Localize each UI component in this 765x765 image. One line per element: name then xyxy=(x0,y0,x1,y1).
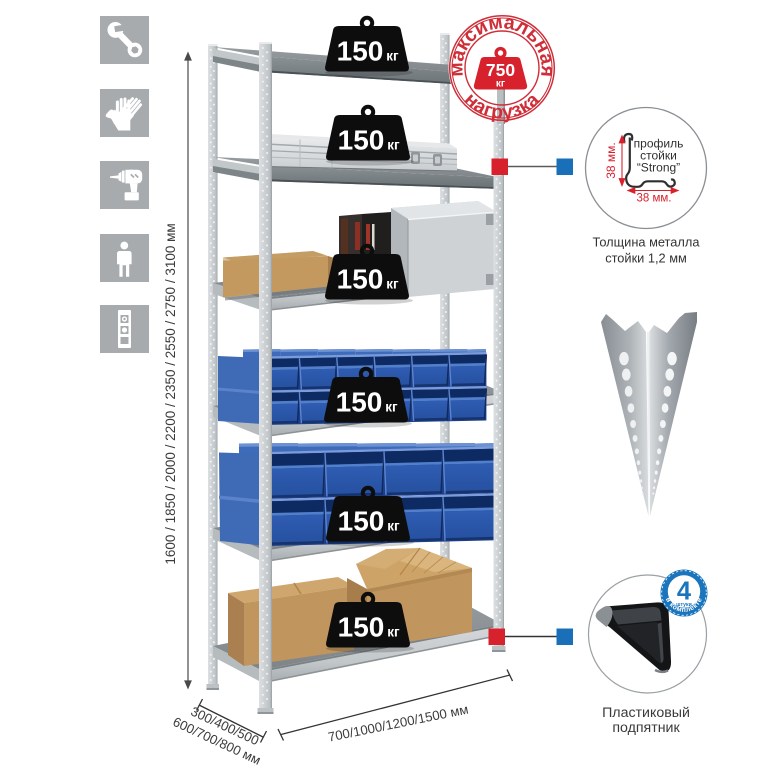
svg-text:Пластиковый: Пластиковый xyxy=(602,705,690,721)
svg-text:150: 150 xyxy=(338,506,385,537)
svg-text:кг: кг xyxy=(387,519,400,534)
svg-text:38 мм.: 38 мм. xyxy=(637,193,672,205)
svg-text:кг: кг xyxy=(387,625,400,640)
svg-text:Толщина металла: Толщина металла xyxy=(593,235,701,250)
svg-text:кг: кг xyxy=(386,277,399,292)
svg-text:150: 150 xyxy=(338,612,385,643)
svg-text:1600 / 1850 / 2000 / 2200 / 23: 1600 / 1850 / 2000 / 2200 / 2350 / 2550 … xyxy=(163,223,178,564)
svg-text:150: 150 xyxy=(338,125,385,156)
svg-text:кг: кг xyxy=(496,79,505,90)
svg-text:кг: кг xyxy=(386,49,399,64)
svg-text:38 мм.: 38 мм. xyxy=(604,142,618,179)
svg-text:кг: кг xyxy=(385,400,398,415)
svg-text:150: 150 xyxy=(337,264,384,295)
svg-text:подпятник: подпятник xyxy=(612,720,680,736)
svg-text:150: 150 xyxy=(337,36,384,67)
svg-text:стойки 1,2 мм: стойки 1,2 мм xyxy=(605,250,687,265)
svg-text:150: 150 xyxy=(336,387,383,418)
svg-text:“Strong”: “Strong” xyxy=(637,161,680,175)
svg-text:750: 750 xyxy=(486,60,515,80)
svg-text:кг: кг xyxy=(387,138,400,153)
